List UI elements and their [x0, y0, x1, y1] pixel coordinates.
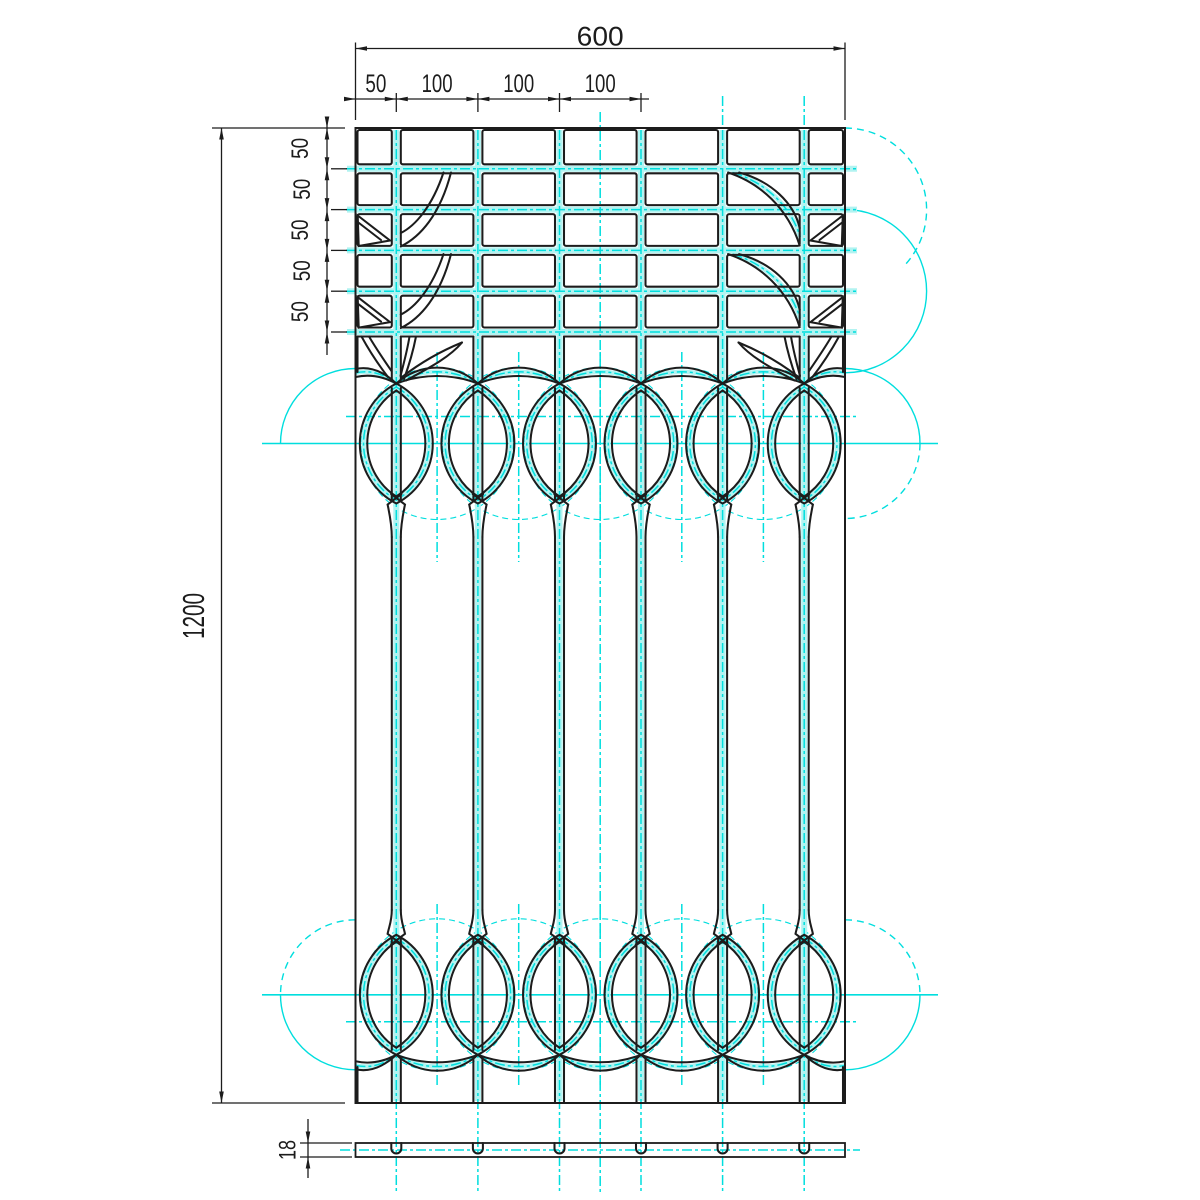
svg-text:100: 100: [422, 70, 453, 98]
svg-text:50: 50: [287, 220, 314, 241]
svg-text:100: 100: [503, 70, 534, 98]
svg-text:50: 50: [287, 138, 314, 159]
svg-text:18: 18: [275, 1140, 302, 1160]
svg-text:50: 50: [287, 301, 314, 322]
svg-text:50: 50: [289, 179, 316, 200]
svg-text:600: 600: [577, 21, 624, 51]
svg-text:1200: 1200: [176, 593, 211, 639]
svg-text:50: 50: [289, 260, 316, 281]
svg-text:100: 100: [585, 70, 616, 98]
svg-text:50: 50: [365, 70, 386, 98]
